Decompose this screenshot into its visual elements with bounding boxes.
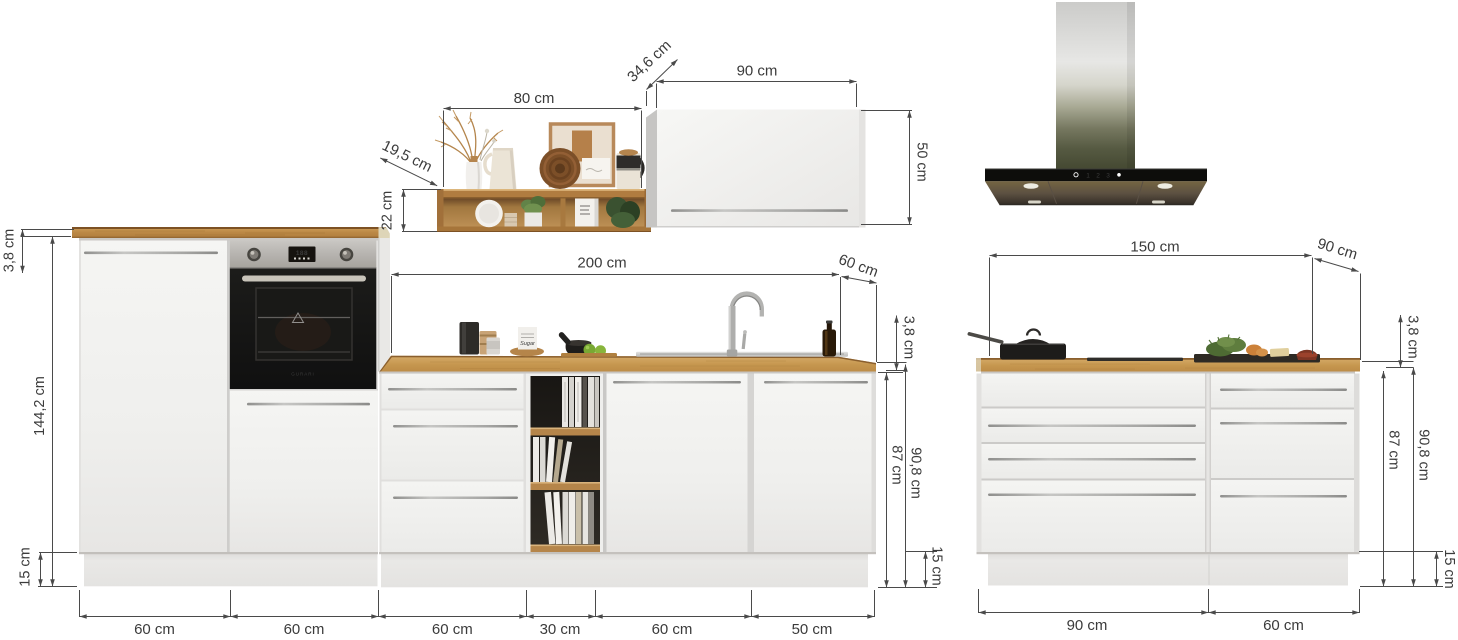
svg-text:60 cm: 60 cm — [284, 621, 325, 638]
svg-text:15 cm: 15 cm — [929, 546, 945, 586]
svg-text:50 cm: 50 cm — [914, 142, 930, 182]
svg-text:188: 188 — [296, 250, 308, 257]
svg-text:60 cm: 60 cm — [1263, 617, 1304, 634]
svg-text:Sugar: Sugar — [520, 341, 536, 347]
svg-text:87 cm: 87 cm — [1386, 430, 1402, 470]
svg-text:15 cm: 15 cm — [1441, 549, 1457, 589]
svg-text:3: 3 — [1106, 172, 1110, 179]
svg-text:50 cm: 50 cm — [792, 621, 833, 638]
svg-text:2: 2 — [1096, 172, 1100, 179]
svg-text:3,8 cm: 3,8 cm — [2, 229, 18, 273]
svg-text:GURARI: GURARI — [291, 372, 315, 377]
svg-text:3,8 cm: 3,8 cm — [901, 316, 917, 360]
svg-text:3,8 cm: 3,8 cm — [1405, 315, 1421, 359]
svg-text:87 cm: 87 cm — [888, 445, 904, 485]
svg-text:30 cm: 30 cm — [540, 621, 581, 638]
svg-text:15 cm: 15 cm — [18, 547, 34, 587]
svg-text:1: 1 — [1086, 172, 1090, 179]
svg-text:60 cm: 60 cm — [652, 621, 693, 638]
svg-text:22 cm: 22 cm — [380, 191, 396, 231]
svg-text:60 cm: 60 cm — [134, 621, 175, 638]
svg-text:200 cm: 200 cm — [577, 255, 626, 272]
svg-text:90,8 cm: 90,8 cm — [908, 447, 924, 499]
svg-text:90,8 cm: 90,8 cm — [1416, 429, 1432, 481]
svg-text:60 cm: 60 cm — [432, 621, 473, 638]
svg-text:90 cm: 90 cm — [1067, 617, 1108, 634]
svg-text:80 cm: 80 cm — [514, 90, 555, 107]
svg-text:144,2 cm: 144,2 cm — [32, 376, 48, 436]
svg-text:150 cm: 150 cm — [1130, 238, 1179, 255]
svg-text:90 cm: 90 cm — [737, 63, 778, 80]
